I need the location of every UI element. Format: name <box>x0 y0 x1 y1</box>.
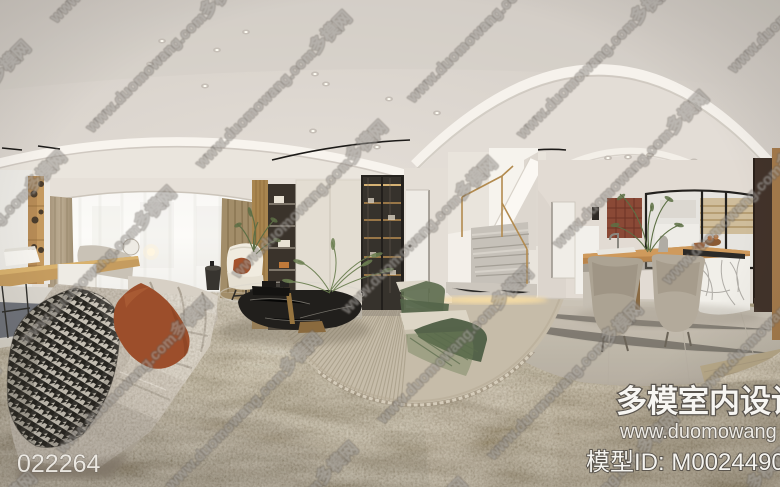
svg-text:模型ID: M0024490: 模型ID: M0024490 <box>586 449 780 476</box>
svg-text:多模室内设计: 多模室内设计 <box>616 384 780 419</box>
svg-text:www.duomowang: www.duomowang <box>619 421 777 443</box>
svg-text:022264: 022264 <box>17 450 101 478</box>
